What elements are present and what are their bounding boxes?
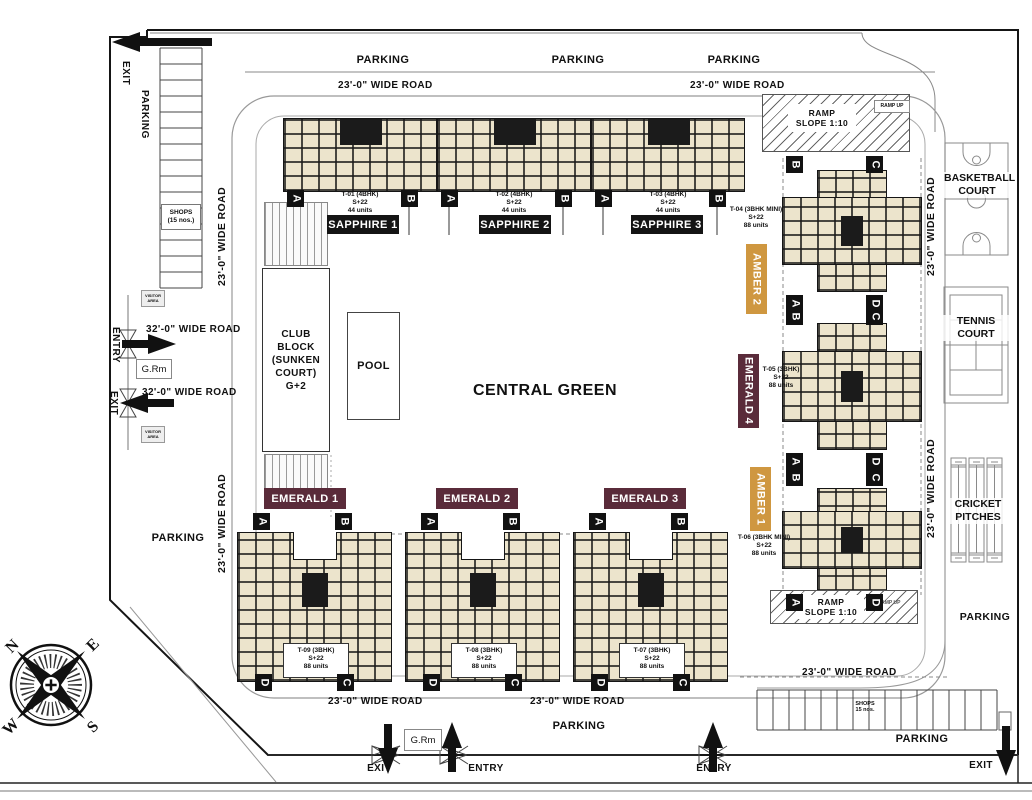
road-label-23-top-left: 23'-0" WIDE ROAD: [338, 80, 430, 91]
road-label-32-1: 32'-0" WIDE ROAD: [146, 324, 230, 335]
marker-b: B: [335, 513, 352, 530]
marker-b: B: [503, 513, 520, 530]
site-plan: N E S W CLUB BLOCK (SUNKEN COURT) G+2 PO…: [0, 0, 1032, 800]
marker-c: C: [866, 156, 883, 173]
annotation-t04: T-04 (3BHK MINI)S+2288 units: [726, 206, 786, 230]
road-label-23-top-right: 23'-0" WIDE ROAD: [690, 80, 782, 91]
marker-b: B: [671, 513, 688, 530]
parking-label-bottom-center: PARKING: [547, 720, 611, 732]
guard-room-bottom: G.Rm: [404, 729, 442, 751]
club-block: CLUB BLOCK (SUNKEN COURT) G+2: [262, 268, 330, 452]
marker-a: A: [589, 513, 606, 530]
exit-arrow-top-left: [112, 32, 212, 52]
compass-e: E: [83, 635, 103, 655]
road-label-23-right-2: 23'-0" WIDE ROAD: [925, 446, 937, 538]
label-emerald-2: EMERALD 2: [436, 488, 518, 509]
shops-left: SHOPS (15 nos.): [161, 204, 201, 230]
road-label-23-bottom-center: 23'-0" WIDE ROAD: [530, 696, 624, 707]
shops-left-label-2: (15 nos.): [168, 217, 195, 225]
marker-b: B: [786, 469, 803, 486]
ramp-word: RAMP: [809, 108, 836, 118]
marker-c: C: [866, 469, 883, 486]
label-sapphire-1: SAPPHIRE 1: [327, 215, 399, 234]
compass-w: W: [0, 715, 23, 738]
guard-room-left: G.Rm: [136, 359, 172, 379]
ramp-bottom-label: RAMP SLOPE 1:10: [798, 595, 864, 619]
visitor-area-2: VISITOR AREA: [141, 426, 165, 443]
visitor-area-label: VISITOR AREA: [142, 430, 164, 439]
tennis-court-label: TENNIS COURT: [938, 315, 1014, 341]
marker-d: D: [866, 453, 883, 470]
road-label-23-left-1: 23'-0" WIDE ROAD: [216, 194, 228, 286]
parking-label-left: PARKING: [139, 84, 150, 144]
marker-b: B: [786, 308, 803, 325]
marker-a: A: [441, 190, 458, 207]
marker-c: C: [673, 674, 690, 691]
parking-label-bottom-right: PARKING: [894, 733, 950, 745]
building-sapphire-2: [437, 118, 591, 192]
building-sapphire-3: [591, 118, 745, 192]
ramp-up-label-top: RAMP UP: [881, 104, 904, 110]
visitor-area-1: VISITOR AREA: [141, 290, 165, 307]
marker-c: C: [337, 674, 354, 691]
parking-label-top-2: PARKING: [540, 54, 616, 66]
annotation-t03: T-03 (4BHK)S+2244 units: [630, 191, 706, 215]
left-shops-stalls: [160, 48, 202, 288]
ramp-up-box-top: RAMP UP: [874, 100, 910, 113]
annotation-t05: T-05 (3BHK)S+2288 units: [756, 366, 806, 390]
basketball-court: [945, 143, 1008, 255]
marker-c: C: [866, 308, 883, 325]
marker-d: D: [255, 674, 272, 691]
marker-b: B: [709, 190, 726, 207]
shops-left-label-1: SHOPS: [170, 209, 193, 217]
marker-a: A: [253, 513, 270, 530]
marker-a: A: [595, 190, 612, 207]
ramp-slope-word: SLOPE 1:10: [796, 118, 848, 128]
label-emerald-1: EMERALD 1: [264, 488, 346, 509]
compass-s: S: [84, 718, 102, 736]
visitor-area-label: VISITOR AREA: [142, 294, 164, 303]
building-sapphire-1: [283, 118, 437, 192]
marker-b: B: [555, 190, 572, 207]
marker-b: B: [786, 156, 803, 173]
pool: POOL: [347, 312, 400, 420]
parking-label-right: PARKING: [958, 611, 1012, 623]
label-amber-2: AMBER 2: [746, 244, 767, 314]
compass-rose: N E S W: [0, 596, 144, 780]
shops-right-label-2: 15 nos.: [856, 707, 875, 714]
tennis-court: [944, 287, 1008, 403]
annotation-t01: T-01 (4BHK)S+2244 units: [322, 191, 398, 215]
exit-label-top-left: EXIT: [120, 56, 131, 90]
marker-a: A: [786, 453, 803, 470]
label-emerald-3: EMERALD 3: [604, 488, 686, 509]
cricket-pitches-label: CRICKET PITCHES: [946, 498, 1010, 524]
exit-label-left: EXIT: [108, 386, 119, 420]
entry-label-bottom-2: ENTRY: [691, 763, 737, 774]
annotation-t07: T-07 (3BHK)S+2288 units: [619, 643, 685, 678]
central-green-label: CENTRAL GREEN: [460, 382, 630, 400]
marker-b: B: [401, 190, 418, 207]
club-steps-lower: [264, 454, 328, 490]
building-amber-2: [782, 170, 922, 292]
building-amber-1: [782, 488, 922, 592]
label-sapphire-2: SAPPHIRE 2: [479, 215, 551, 234]
marker-a: A: [287, 190, 304, 207]
basketball-court-label: BASKETBALL COURT: [944, 172, 1010, 198]
marker-a: A: [421, 513, 438, 530]
shops-right: SHOPS 15 nos.: [845, 698, 885, 716]
exit-label-bottom-right: EXIT: [962, 760, 1000, 771]
marker-d: D: [591, 674, 608, 691]
entry-label-left: ENTRY: [110, 324, 121, 366]
annotation-t06: T-06 (3BHK MINI)S+2288 units: [734, 534, 794, 558]
club-block-label: CLUB BLOCK (SUNKEN COURT) G+2: [265, 328, 327, 393]
annotation-t09: T-09 (3BHK)S+2288 units: [283, 643, 349, 678]
road-label-23-left-2: 23'-0" WIDE ROAD: [216, 481, 228, 573]
road-label-23-bottom-right: 23'-0" WIDE ROAD: [802, 667, 896, 678]
exit-label-bottom: EXIT: [360, 763, 398, 774]
label-sapphire-3: SAPPHIRE 3: [631, 215, 703, 234]
road-label-23-right-1: 23'-0" WIDE ROAD: [925, 184, 937, 276]
entry-arrow-bottom-1: [442, 722, 462, 772]
pool-label: POOL: [357, 360, 390, 372]
marker-a: A: [786, 594, 803, 611]
parking-label-top-3: PARKING: [696, 54, 772, 66]
annotation-t02: T-02 (4BHK)S+2244 units: [476, 191, 552, 215]
marker-c: C: [505, 674, 522, 691]
entry-label-bottom-1: ENTRY: [463, 763, 509, 774]
club-steps-upper: [264, 202, 328, 266]
ramp-slope-word-2: SLOPE 1:10: [805, 607, 857, 617]
annotation-t08: T-08 (3BHK)S+2288 units: [451, 643, 517, 678]
marker-d: D: [866, 594, 883, 611]
parking-label-top-1: PARKING: [345, 54, 421, 66]
road-label-32-2: 32'-0" WIDE ROAD: [142, 387, 226, 398]
bottom-right-road-curve: [757, 640, 945, 688]
ramp-word-2: RAMP: [818, 597, 845, 607]
label-amber-1: AMBER 1: [750, 467, 771, 531]
ramp-top-label: RAMP SLOPE 1:10: [788, 104, 856, 132]
marker-d: D: [423, 674, 440, 691]
entry-arrow-left: [122, 334, 176, 354]
parking-label-bottom-left: PARKING: [148, 532, 208, 544]
road-label-23-bottom-left: 23'-0" WIDE ROAD: [328, 696, 422, 707]
